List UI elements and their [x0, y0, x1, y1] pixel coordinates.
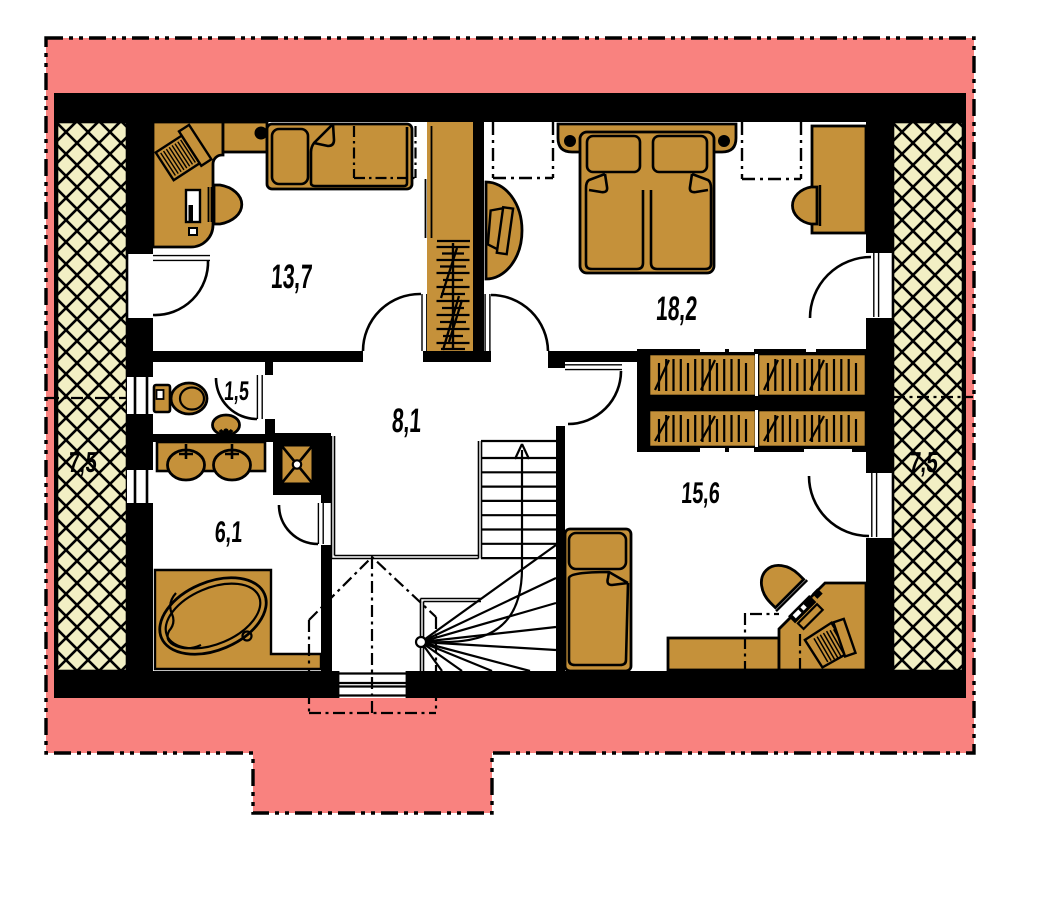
svg-text:18,2: 18,2: [655, 290, 699, 328]
svg-text:7,5: 7,5: [67, 447, 98, 479]
svg-text:8,1: 8,1: [391, 402, 423, 440]
svg-text:13,7: 13,7: [270, 258, 314, 296]
svg-text:7,5: 7,5: [908, 447, 939, 479]
svg-text:1,5: 1,5: [223, 375, 250, 406]
svg-text:15,6: 15,6: [680, 477, 721, 510]
svg-text:6,1: 6,1: [214, 516, 244, 549]
